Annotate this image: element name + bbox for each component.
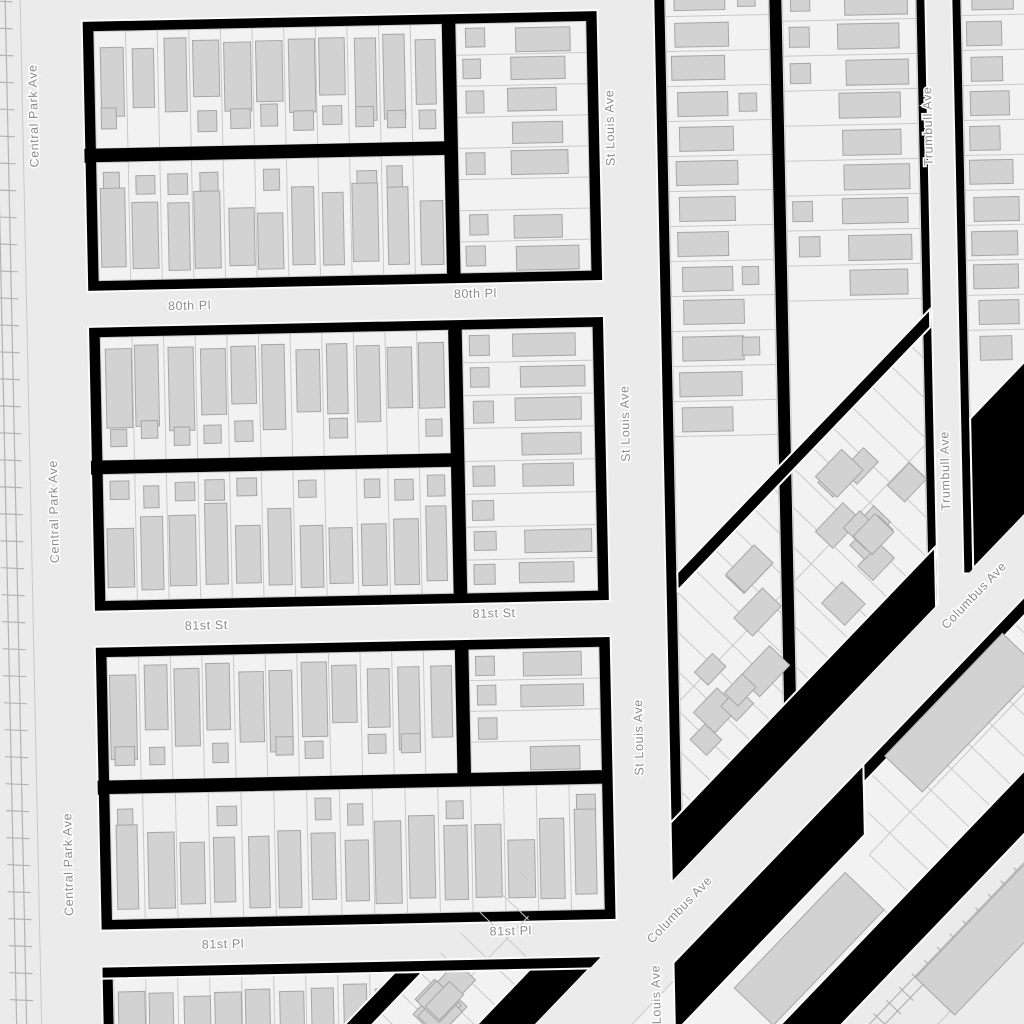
street-label-st-louis-ave: St Louis Ave [602, 89, 618, 166]
street-label-st-louis-ave: St Louis Ave [649, 965, 665, 1024]
street-label-st-louis-ave: St Louis Ave [631, 699, 647, 776]
map-viewport[interactable]: Central Park AveCentral Park AveCentral … [0, 0, 1024, 1024]
street-label-central-park-ave: Central Park Ave [46, 460, 62, 563]
street-label-81st-pl: 81st Pl [489, 924, 532, 939]
street-label-trumbull-ave: Trumbull Ave [937, 431, 953, 511]
street-label-st-louis-ave: St Louis Ave [617, 385, 633, 462]
street-label-81st-st: 81st St [472, 606, 515, 621]
map-canvas[interactable]: Central Park AveCentral Park AveCentral … [0, 0, 1024, 1024]
street-label-central-park-ave: Central Park Ave [60, 813, 76, 916]
street-label-central-park-ave: Central Park Ave [26, 64, 42, 167]
street-label-81st-pl: 81st Pl [202, 937, 245, 952]
street-label-trumbull-ave: Trumbull Ave [920, 86, 936, 166]
street-label-80th-pl: 80th Pl [168, 298, 211, 313]
map-rotated-layer: Central Park AveCentral Park AveCentral … [0, 0, 1024, 1024]
street-label-81st-st: 81st St [185, 618, 228, 633]
street-label-80th-pl: 80th Pl [454, 286, 497, 301]
